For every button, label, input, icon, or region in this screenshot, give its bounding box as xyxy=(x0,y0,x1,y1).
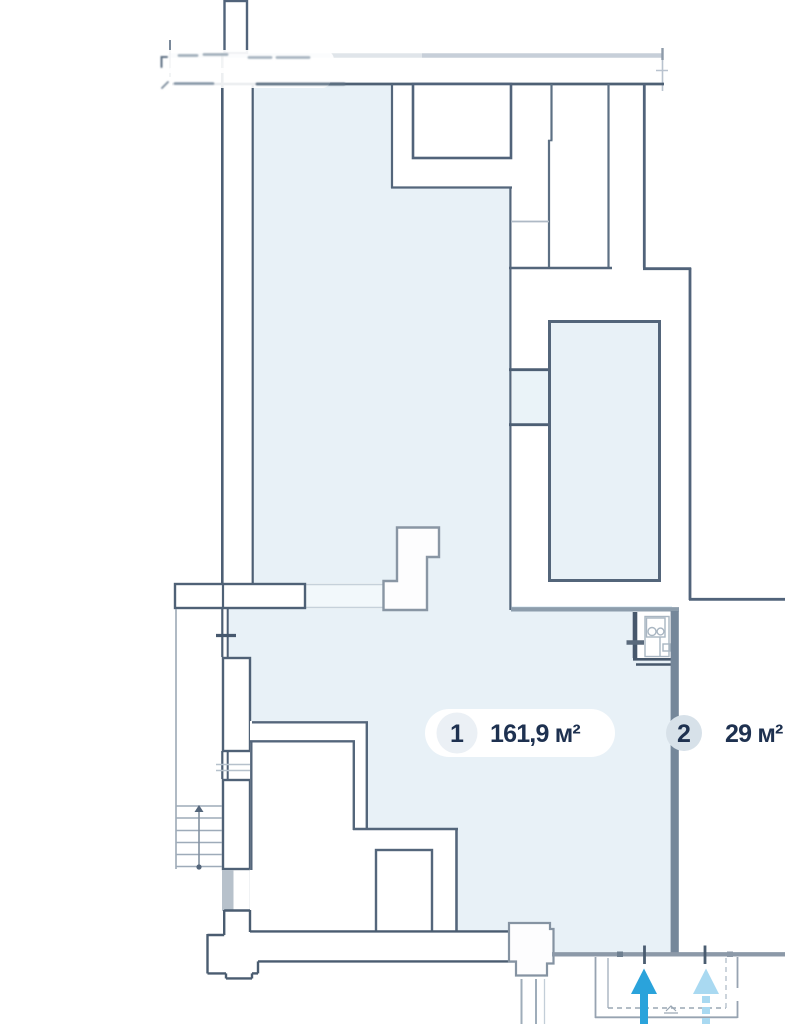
svg-text:1: 1 xyxy=(450,720,464,748)
svg-text:2: 2 xyxy=(677,720,691,748)
svg-text:29 м²: 29 м² xyxy=(725,720,783,748)
svg-text:161,9 м²: 161,9 м² xyxy=(490,720,580,748)
